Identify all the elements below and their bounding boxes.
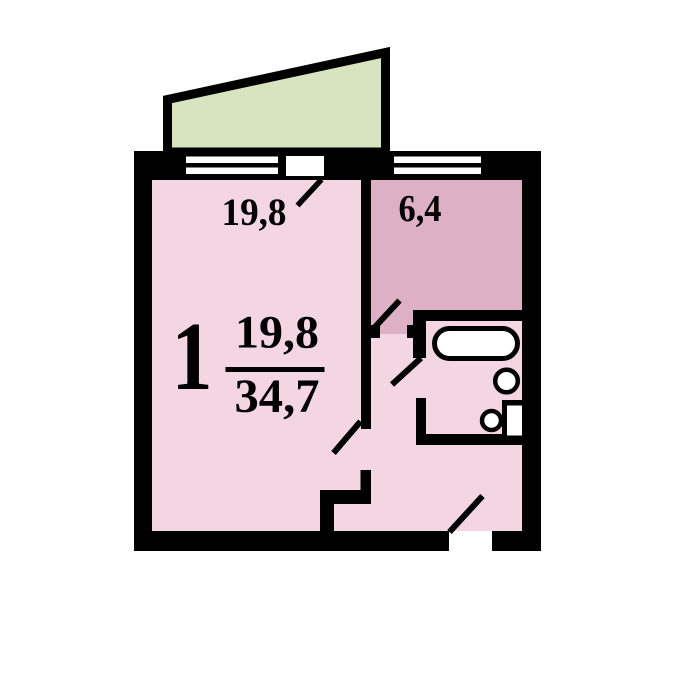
svg-text:34,7: 34,7 (235, 370, 320, 423)
svg-text:6,4: 6,4 (399, 188, 442, 230)
svg-text:1: 1 (172, 303, 213, 411)
svg-text:19,8: 19,8 (235, 307, 319, 359)
svg-text:19,8: 19,8 (222, 191, 287, 234)
